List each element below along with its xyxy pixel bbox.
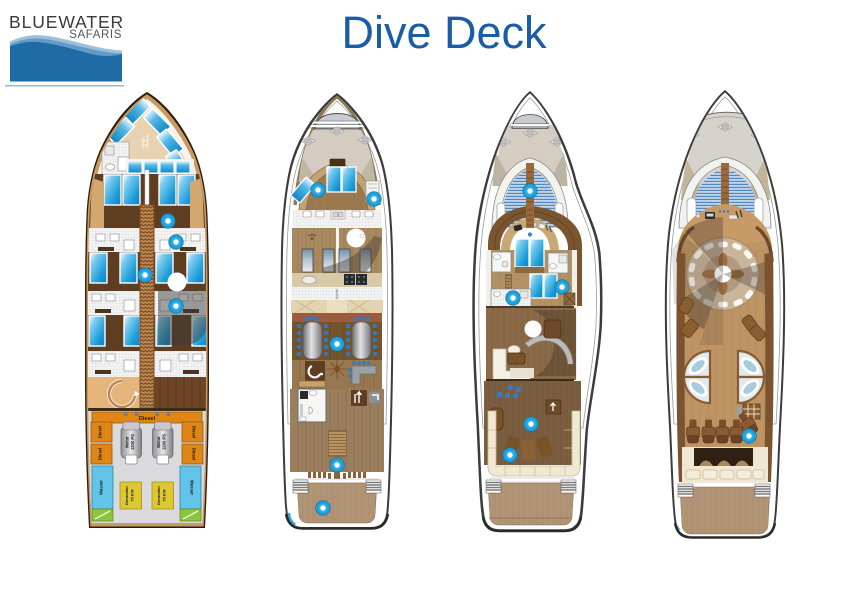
svg-text:Diesel: Diesel xyxy=(139,416,156,422)
svg-text:Diesel: Diesel xyxy=(192,448,197,460)
svg-text:Motor: Motor xyxy=(156,436,161,448)
svg-text:Diesel: Diesel xyxy=(98,448,103,460)
svg-text:Generator: Generator xyxy=(156,486,161,506)
svg-text:1200 PS: 1200 PS xyxy=(130,434,135,450)
svg-text:70 KW: 70 KW xyxy=(162,489,167,501)
svg-text:Wasser: Wasser xyxy=(190,480,195,495)
svg-text:Küche: Küche xyxy=(335,289,339,299)
svg-text:Diesel: Diesel xyxy=(98,426,103,438)
svg-text:Wasser: Wasser xyxy=(99,480,104,495)
svg-text:Generator: Generator xyxy=(124,486,129,506)
svg-text:Dive Deck: Dive Deck xyxy=(341,7,547,58)
svg-text:1200 PS: 1200 PS xyxy=(162,434,167,450)
svg-text:SAFARIS: SAFARIS xyxy=(69,29,122,41)
svg-text:70 KW: 70 KW xyxy=(130,489,135,501)
svg-text:Diesel: Diesel xyxy=(192,426,197,438)
svg-text:Motor: Motor xyxy=(125,436,130,448)
